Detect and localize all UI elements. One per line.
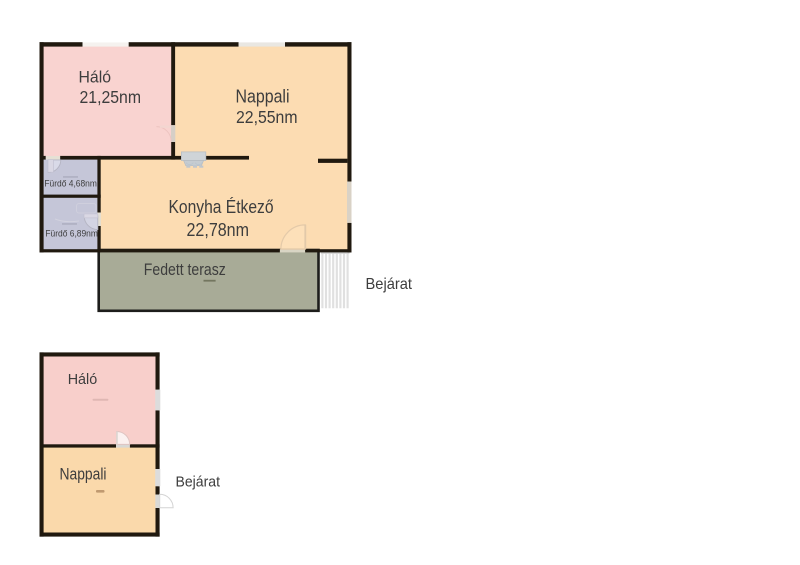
svg-text:Bejárat: Bejárat [366, 276, 413, 293]
svg-text:Nappali: Nappali [60, 465, 107, 484]
svg-text:22,55nm: 22,55nm [236, 107, 298, 127]
svg-text:Fürdő 6,89nm: Fürdő 6,89nm [45, 229, 98, 240]
svg-text:Konyha Étkező: Konyha Étkező [169, 197, 274, 217]
svg-text:Háló: Háló [79, 68, 112, 87]
svg-text:Fürdő 4,68nm: Fürdő 4,68nm [44, 179, 97, 190]
svg-text:22,78nm: 22,78nm [187, 220, 250, 240]
svg-text:Bejárat: Bejárat [176, 474, 221, 491]
svg-text:Háló: Háló [68, 371, 98, 388]
svg-text:Fedett terasz: Fedett terasz [144, 261, 226, 279]
svg-text:21,25nm: 21,25nm [80, 87, 142, 107]
svg-text:Nappali: Nappali [236, 86, 290, 106]
